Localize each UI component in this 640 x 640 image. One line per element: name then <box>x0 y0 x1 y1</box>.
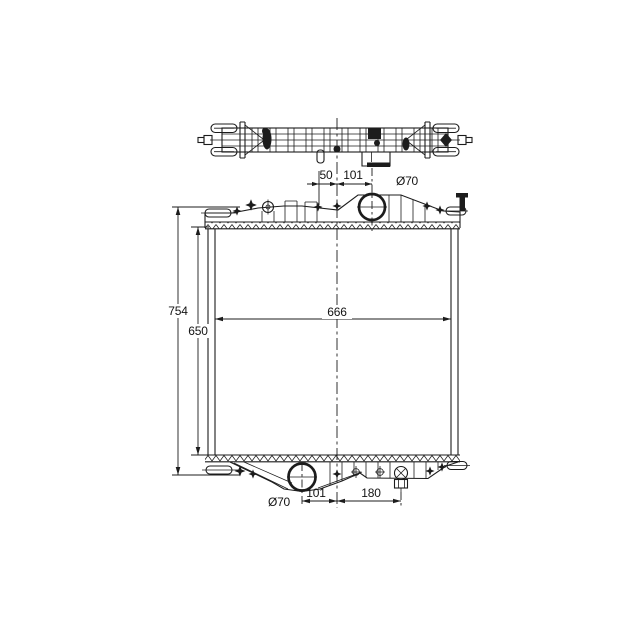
screw-icon <box>422 201 431 210</box>
bolt-head-icon <box>456 193 468 198</box>
top-view <box>198 122 472 167</box>
top-tank-crimp-seam <box>205 222 460 229</box>
bottom-tank-outline <box>230 462 458 492</box>
dim-101-bottom-label: 101 <box>306 486 326 500</box>
dim-180-label: 180 <box>361 486 381 500</box>
bottom-tank-crimp-seam <box>205 455 460 462</box>
bottom-tank-left-pin <box>202 466 238 474</box>
dim-754-label: 754 <box>168 304 188 318</box>
dim-650-label: 650 <box>188 324 208 338</box>
dimension-overall-height: 754 <box>163 207 240 475</box>
front-view-core: 666 <box>208 229 458 455</box>
top-tank-left-pin <box>201 209 237 217</box>
drain-plug <box>395 467 408 493</box>
dim-101-top-label: 101 <box>343 168 363 182</box>
radiator-technical-drawing: 50 101 Ø70 <box>0 0 640 640</box>
dim-outlet-diameter-label: Ø70 <box>268 495 291 509</box>
bolt-icon <box>375 466 385 478</box>
screw-icon <box>232 206 241 215</box>
screw-icon <box>437 462 446 471</box>
bottom-tank-ribs <box>330 462 438 485</box>
screw-icon <box>332 469 341 478</box>
dimension-core-width: 666 <box>215 305 451 321</box>
dim-50-label: 50 <box>320 168 333 182</box>
top-view-inlet-stub <box>362 152 390 167</box>
dimension-bottom-offsets: Ø70 101 180 <box>268 463 401 509</box>
front-view-top-tank <box>201 193 468 229</box>
top-tank-ribs <box>389 195 425 222</box>
screw-icon <box>435 205 444 214</box>
top-tank-filler-boss <box>262 200 274 223</box>
dim-666-label: 666 <box>327 305 347 319</box>
front-view-bottom-tank <box>202 455 470 492</box>
screw-icon <box>313 202 322 211</box>
dim-inlet-diameter-label: Ø70 <box>396 174 419 188</box>
dimension-core-height: 650 <box>184 227 213 455</box>
